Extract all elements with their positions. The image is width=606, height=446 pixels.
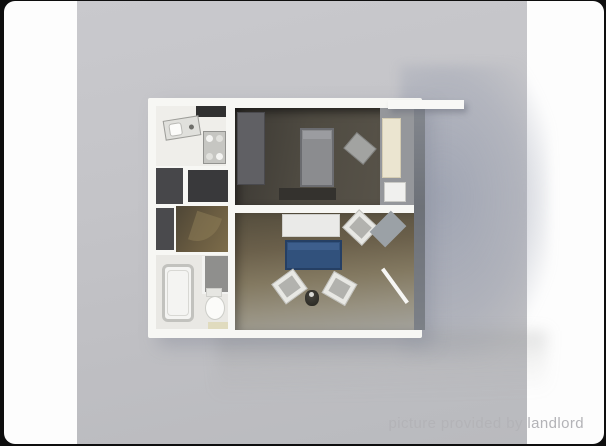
cast-shadow-lower [217,331,547,393]
exterior-wall-extension [388,100,464,109]
dresser [279,188,336,200]
vanity-fixture [384,182,406,202]
toilet-icon [205,296,225,320]
bed-icon [300,128,334,187]
door-swing [188,211,222,248]
sofa-icon [285,240,342,270]
table-icon [282,214,340,237]
bathtub-icon [162,264,194,322]
wall-side-face [414,106,425,330]
hall-closet [156,208,174,250]
room-hallway [176,206,228,252]
bath-mat [208,322,228,329]
listing-photo-card: picture provided by landlord [4,1,604,444]
wardrobe-icon [382,118,401,178]
floorplan [148,98,422,338]
bed-pillow [303,131,331,139]
kitchen-cabinet [196,106,226,117]
stool-icon [305,290,319,306]
photo-lightbox: picture provided by landlord [0,0,606,446]
bedroom-closet [237,112,265,185]
sink-basin [168,122,183,137]
storage-closet [188,170,228,202]
floorplan-photo [77,1,527,444]
sofa-cushion [288,243,339,250]
watermark-text: picture provided by landlord [389,415,584,432]
storage-closet [156,168,183,204]
sink-faucet [189,124,195,130]
stove-icon [203,131,226,164]
bathtub-inner [167,270,189,316]
